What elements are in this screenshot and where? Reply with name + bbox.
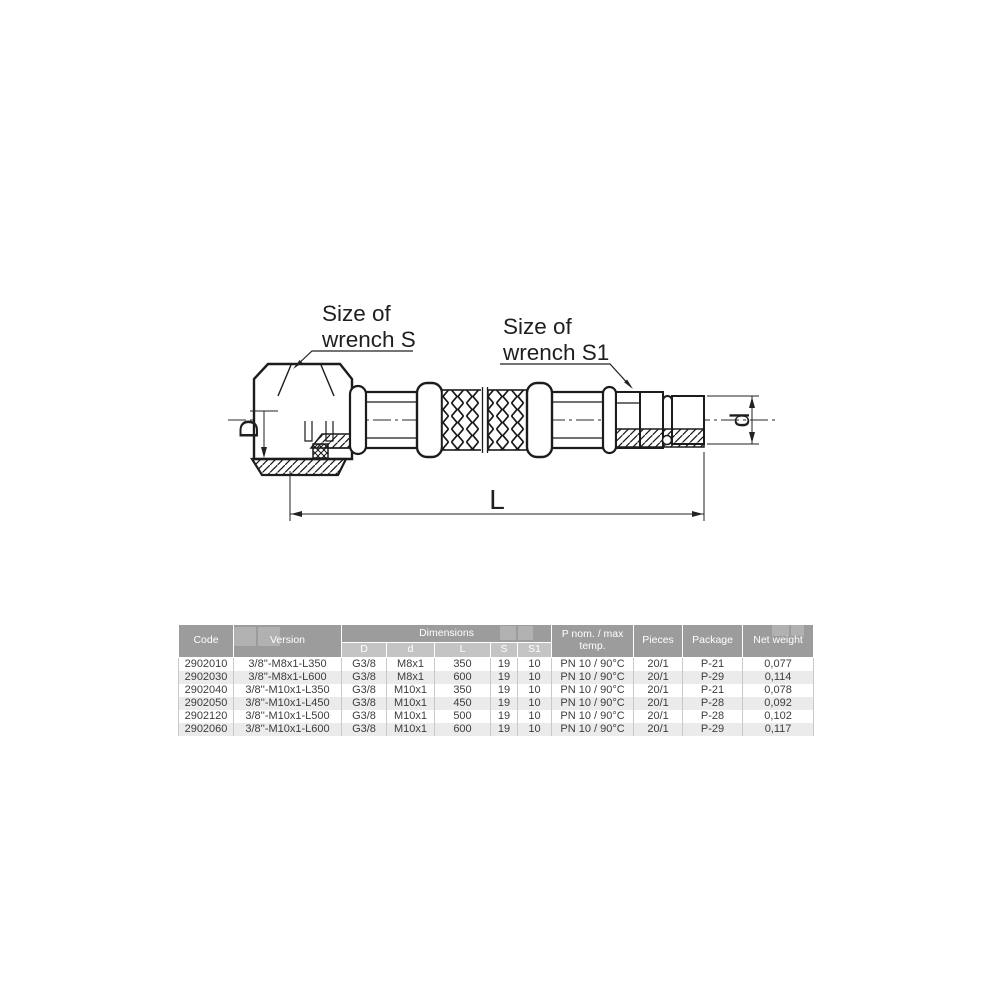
ferrule-left [350, 386, 366, 454]
table-cell: 2902050 [179, 697, 234, 710]
col-header-dim-L: L [435, 643, 491, 658]
table-cell: 0,102 [743, 710, 814, 723]
table-cell: PN 10 / 90°C [552, 710, 634, 723]
wrench-s1-callout: Size of wrench S1 [500, 314, 633, 389]
table-cell: PN 10 / 90°C [552, 697, 634, 710]
table-cell: M10x1 [387, 710, 435, 723]
table-cell: P-28 [683, 697, 743, 710]
table-cell: P-29 [683, 671, 743, 684]
table-cell: 3/8''-M8x1-L600 [234, 671, 342, 684]
table-cell: M10x1 [387, 697, 435, 710]
table-cell: G3/8 [342, 723, 387, 736]
wrench-s1-label-line1: Size of [503, 314, 573, 339]
col-header-dim-d: d [387, 643, 435, 658]
table-cell: 0,092 [743, 697, 814, 710]
col-header-dimensions: Dimensions [342, 625, 552, 643]
table-cell: M10x1 [387, 684, 435, 697]
hose-technical-drawing: D d L Size of wrench S Size of [0, 0, 1000, 1000]
table-cell: P-21 [683, 658, 743, 672]
connector-section-hatch [616, 429, 704, 447]
braid-section-left [442, 390, 482, 450]
table-cell: 19 [491, 710, 518, 723]
col-header-pnom: P nom. / max temp. [552, 625, 634, 658]
gasket-seal [313, 444, 328, 458]
table-cell: PN 10 / 90°C [552, 723, 634, 736]
dimension-L: L [290, 452, 704, 521]
table-cell: 450 [435, 697, 491, 710]
table-cell: 20/1 [634, 684, 683, 697]
col-header-dim-D: D [342, 643, 387, 658]
table-cell: 19 [491, 684, 518, 697]
col-header-pieces: Pieces [634, 625, 683, 658]
table-cell: 2902040 [179, 684, 234, 697]
table-row: 29021203/8''-M10x1-L500G3/8M10x15001910P… [179, 710, 814, 723]
braid-section-right [488, 390, 527, 450]
table-cell: M10x1 [387, 723, 435, 736]
nut-thread-section [252, 459, 346, 475]
table-row: 29020303/8''-M8x1-L600G3/8M8x16001910PN … [179, 671, 814, 684]
table-cell: 10 [518, 697, 552, 710]
table-cell: 600 [435, 671, 491, 684]
table-cell: 0,077 [743, 658, 814, 672]
table-cell: 350 [435, 658, 491, 672]
table-cell: 0,114 [743, 671, 814, 684]
table-cell: P-28 [683, 710, 743, 723]
male-connector [603, 387, 704, 453]
crimp-collar-left [417, 383, 442, 457]
spec-table-container: Code Version Dimensions P nom. / max tem… [178, 624, 814, 736]
ferrule-right [603, 387, 616, 453]
table-cell: G3/8 [342, 710, 387, 723]
table-cell: PN 10 / 90°C [552, 684, 634, 697]
table-cell: 10 [518, 723, 552, 736]
wrench-s-label-line2: wrench S [321, 327, 416, 352]
table-cell: G3/8 [342, 671, 387, 684]
wrench-s-label-line1: Size of [322, 301, 392, 326]
wrench-s-callout: Size of wrench S [293, 301, 416, 369]
table-cell: 500 [435, 710, 491, 723]
table-cell: P-21 [683, 684, 743, 697]
col-header-package: Package [683, 625, 743, 658]
table-cell: 2902120 [179, 710, 234, 723]
col-header-dim-S1: S1 [518, 643, 552, 658]
dim-d-label: d [725, 412, 755, 427]
table-row: 29020503/8''-M10x1-L450G3/8M10x14501910P… [179, 697, 814, 710]
catalog-page: D d L Size of wrench S Size of [0, 0, 1000, 1000]
table-cell: 3/8''-M10x1-L450 [234, 697, 342, 710]
dim-L-label: L [489, 484, 505, 515]
table-cell: 20/1 [634, 723, 683, 736]
table-cell: 20/1 [634, 658, 683, 672]
table-cell: 20/1 [634, 710, 683, 723]
table-cell: 3/8''-M10x1-L350 [234, 684, 342, 697]
table-cell: 10 [518, 658, 552, 672]
table-cell: PN 10 / 90°C [552, 671, 634, 684]
table-cell: G3/8 [342, 697, 387, 710]
table-cell: 20/1 [634, 671, 683, 684]
table-cell: G3/8 [342, 684, 387, 697]
dim-D-label: D [234, 419, 264, 439]
table-cell: 19 [491, 658, 518, 672]
wrench-s1-label-line2: wrench S1 [502, 340, 609, 365]
table-cell: P-29 [683, 723, 743, 736]
table-cell: 600 [435, 723, 491, 736]
col-header-version: Version [234, 625, 342, 658]
table-cell: 20/1 [634, 697, 683, 710]
col-header-code: Code [179, 625, 234, 658]
wrench-s1-leader [500, 364, 631, 387]
table-cell: 10 [518, 684, 552, 697]
crimp-collar-right [527, 383, 552, 457]
table-cell: G3/8 [342, 658, 387, 672]
table-cell: 10 [518, 671, 552, 684]
table-cell: 3/8''-M8x1-L350 [234, 658, 342, 672]
table-cell: 0,078 [743, 684, 814, 697]
col-header-dim-S: S [491, 643, 518, 658]
table-cell: 2902010 [179, 658, 234, 672]
table-cell: PN 10 / 90°C [552, 658, 634, 672]
table-cell: M8x1 [387, 671, 435, 684]
table-cell: 19 [491, 723, 518, 736]
table-cell: 0,117 [743, 723, 814, 736]
table-cell: 350 [435, 684, 491, 697]
table-row: 29020603/8''-M10x1-L600G3/8M10x16001910P… [179, 723, 814, 736]
table-row: 29020403/8''-M10x1-L350G3/8M10x13501910P… [179, 684, 814, 697]
table-cell: 3/8''-M10x1-L500 [234, 710, 342, 723]
union-nut [252, 364, 352, 475]
spec-table-body: 29020103/8''-M8x1-L350G3/8M8x13501910PN … [179, 658, 814, 737]
table-cell: 10 [518, 710, 552, 723]
table-cell: M8x1 [387, 658, 435, 672]
ball-detail [663, 436, 672, 445]
spec-table: Code Version Dimensions P nom. / max tem… [178, 624, 814, 736]
table-cell: 19 [491, 671, 518, 684]
col-header-net-weight: Net weight [743, 625, 814, 658]
table-cell: 19 [491, 697, 518, 710]
table-cell: 2902030 [179, 671, 234, 684]
table-cell: 2902060 [179, 723, 234, 736]
table-cell: 3/8''-M10x1-L600 [234, 723, 342, 736]
table-row: 29020103/8''-M8x1-L350G3/8M8x13501910PN … [179, 658, 814, 672]
